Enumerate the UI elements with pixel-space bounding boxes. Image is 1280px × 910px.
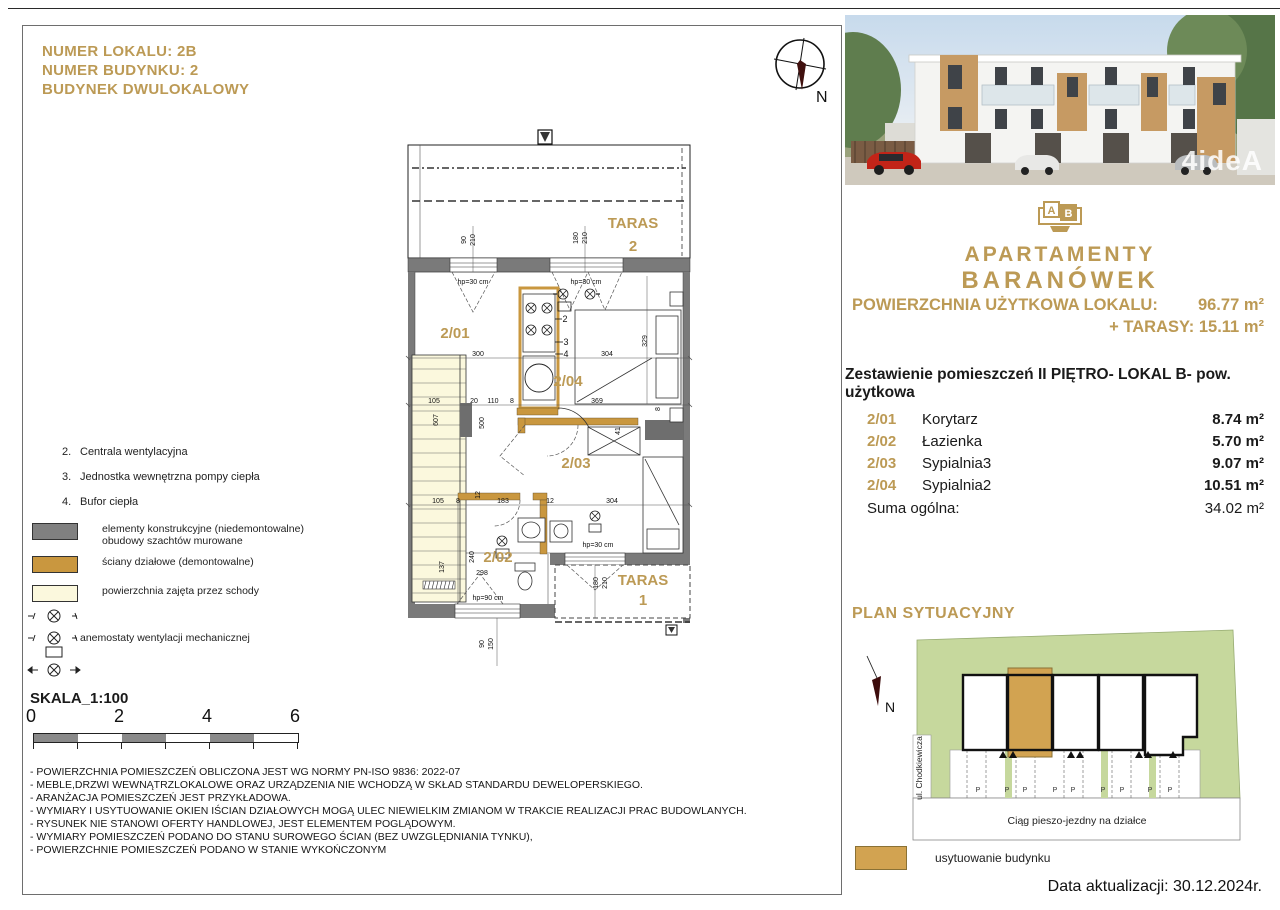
street-name: ul. Chodkiewicza — [914, 736, 924, 800]
brand-logo: A B APARTAMENTY BARANÓWEK — [860, 198, 1260, 295]
label: P — [1148, 787, 1153, 794]
sum-label: Suma ogólna: — [845, 500, 1205, 517]
gold-swatch — [32, 556, 78, 573]
label: 3 — [563, 337, 568, 347]
table-row: 2/01 Korytarz 8.74 m² — [845, 408, 1264, 430]
label: hp=90 cm — [473, 595, 504, 602]
room-code: 2/04 — [845, 477, 922, 494]
toilet-icon — [515, 563, 535, 571]
label: 210 — [602, 577, 609, 589]
unit-number: NUMER LOKALU: 2B — [42, 42, 249, 61]
label: 137 — [439, 561, 446, 573]
legend-note: 3. Jednostka wewnętrzna pompy ciepła — [62, 471, 260, 483]
label: 2 — [562, 314, 567, 324]
label: 4 — [563, 349, 568, 359]
label: 180 — [593, 577, 600, 589]
anemostat-symbols — [26, 608, 86, 680]
gray-swatch — [32, 523, 78, 540]
brochure-page: NUMER LOKALU: 2B NUMER BUDYNKU: 2 BUDYNE… — [0, 0, 1280, 910]
label: 12 — [475, 491, 482, 499]
table-row: 2/02 Łazienka 5.70 m² — [845, 430, 1264, 452]
room-name: Sypialnia3 — [922, 455, 1212, 472]
label: 304 — [606, 498, 618, 505]
label: P — [1120, 787, 1125, 794]
building-location-swatch — [855, 846, 907, 870]
label: 607 — [433, 414, 440, 426]
room-table: Zestawienie pomieszczeń II PIĘTRO- LOKAL… — [845, 366, 1264, 520]
sum-value: 34.02 m² — [1205, 500, 1264, 517]
legend-partition: ściany działowe (demontowalne) — [32, 556, 254, 573]
note-line: - RYSUNEK NIE STANOWI OFERTY HANDLOWEJ, … — [30, 818, 747, 831]
label: P — [1005, 787, 1010, 794]
roof-drain-icon — [538, 130, 552, 144]
label: P — [1053, 787, 1058, 794]
unit-header: NUMER LOKALU: 2B NUMER BUDYNKU: 2 BUDYNE… — [42, 42, 249, 99]
room-name: Sypialnia2 — [922, 477, 1204, 494]
north-arrow-line — [867, 656, 877, 678]
siteplan-legend-label: usytuowanie budynku — [935, 851, 1050, 865]
label: 105 — [428, 398, 440, 405]
building-outlines — [963, 675, 1197, 755]
north-wall — [408, 258, 690, 272]
siteplan-legend: usytuowanie budynku — [855, 846, 1050, 870]
legend-stairs: powierzchnia zajęta przez schody — [32, 585, 259, 602]
label: 2/04 — [553, 373, 583, 390]
swatch-label: obudowy szachtów murowane — [102, 535, 304, 547]
scale-title: SKALA_1:100 — [30, 690, 128, 707]
room-area: 5.70 m² — [1212, 433, 1264, 450]
terrace-area-value: + TARASY: 15.11 m² — [852, 318, 1264, 337]
top-rule — [8, 8, 1280, 9]
note-line: - WYMIARY POMIESZCZEŃ PODANO DO STANU SU… — [30, 831, 747, 844]
label: hp=30 cm — [571, 279, 602, 286]
swatch-label: ściany działowe (demontowalne) — [102, 556, 254, 568]
scale-tick-label: 0 — [26, 706, 36, 727]
label: 180 — [573, 232, 580, 244]
label: 105 — [432, 498, 444, 505]
scale-tick-label: 2 — [114, 706, 124, 727]
area-summary: POWIERZCHNIA UŻYTKOWA LOKALU: 96.77 m² +… — [852, 296, 1264, 337]
label: 41 — [615, 427, 622, 435]
table-row: 2/04 Sypialnia2 10.51 m² — [845, 474, 1264, 496]
brand-name-line1: APARTAMENTY — [860, 243, 1260, 267]
legend-note: 2. Centrala wentylacyjna — [62, 446, 260, 458]
cream-swatch — [32, 585, 78, 602]
note-text: Jednostka wewnętrzna pompy ciepła — [80, 471, 260, 483]
scale-tick-label: 4 — [202, 706, 212, 727]
update-date: Data aktualizacji: 30.12.2024r. — [1048, 878, 1262, 896]
label: 90 — [461, 236, 468, 244]
label: 1 — [639, 592, 647, 609]
ab-logo-icon: A B — [1036, 198, 1084, 234]
label: 329 — [642, 335, 649, 347]
technical-shaft — [517, 288, 563, 415]
label: 369 — [591, 398, 603, 405]
building-number: NUMER BUDYNKU: 2 — [42, 61, 249, 80]
label: 240 — [469, 551, 476, 563]
label: 8 — [655, 407, 662, 411]
table-row: 2/03 Sypialnia3 9.07 m² — [845, 452, 1264, 474]
highlighted-building — [1008, 668, 1052, 757]
label: 2/03 — [561, 455, 590, 472]
label: 2 — [629, 238, 637, 255]
siteplan-title: PLAN SYTUACYJNY — [852, 605, 1015, 623]
logo-letter-a: A — [1048, 205, 1056, 217]
note-text: Bufor ciepła — [80, 496, 138, 508]
siteplan-north-label: N — [885, 699, 895, 715]
note-num: 3. — [62, 471, 80, 483]
label: 20 — [470, 398, 478, 405]
equipment-number-labels: 234 — [562, 314, 568, 359]
compass: N — [768, 26, 838, 112]
legend-note: 4. Bufor ciepła — [62, 496, 260, 508]
label: P — [1168, 787, 1173, 794]
usable-area-value: 96.77 m² — [1198, 296, 1264, 315]
label: 300 — [472, 351, 484, 358]
label: TARAS — [608, 215, 659, 232]
usable-area-label: POWIERZCHNIA UŻYTKOWA LOKALU: — [852, 296, 1158, 315]
note-line: - ARANŻACJA POMIESZCZEŃ JEST PRZYKŁADOWA… — [30, 792, 747, 805]
radiator-icon — [423, 581, 455, 589]
label: 12 — [546, 498, 554, 505]
label: hp=30 cm — [458, 279, 489, 286]
note-line: - MEBLE,DRZWI WEWNĄTRZLOKALOWE ORAZ URZĄ… — [30, 779, 747, 792]
label: TARAS — [618, 572, 669, 589]
label: 298 — [476, 570, 488, 577]
terrace-2-area — [408, 145, 690, 258]
table-sum-row: Suma ogólna: 34.02 m² — [845, 496, 1264, 520]
note-line: - WYMIARY I USYTUOWANIE OKIEN IŚCIAN DZI… — [30, 805, 747, 818]
note-text: Centrala wentylacyjna — [80, 446, 188, 458]
label: 90 — [479, 640, 486, 648]
label: hp=30 cm — [583, 542, 614, 549]
swatch-label: powierzchnia zajęta przez schody — [102, 585, 259, 597]
label: 110 — [487, 398, 498, 405]
watermark: 4ideA — [1182, 145, 1263, 177]
road-label: Ciąg pieszo-jezdny na działce — [1008, 815, 1147, 827]
label: P — [1023, 787, 1028, 794]
note-line: - POWIERZCHNIA POMIESZCZEŃ OBLICZONA JES… — [30, 766, 747, 779]
building-render-photo: 4ideA — [845, 15, 1275, 185]
label: 210 — [470, 234, 477, 246]
logo-letter-b: B — [1065, 208, 1073, 220]
disclaimer-notes: - POWIERZCHNIA POMIESZCZEŃ OBLICZONA JES… — [30, 766, 747, 857]
legend-structural: elementy konstrukcyjne (niedemontowalne)… — [32, 523, 304, 547]
label: 150 — [488, 638, 495, 650]
scale-numbers: 0 2 4 6 — [26, 706, 302, 728]
scale-ticks — [33, 742, 299, 749]
note-num: 2. — [62, 446, 80, 458]
label: 210 — [582, 232, 589, 244]
note-line: - POWIERZCHNIE POMIESZCZEŃ PODANO W STAN… — [30, 844, 747, 857]
label: 304 — [601, 351, 613, 358]
north-arrow-needle-icon — [872, 676, 881, 706]
label: 183 — [497, 498, 509, 505]
equipment-legend: 2. Centrala wentylacyjna 3. Jednostka we… — [62, 446, 260, 521]
room-area: 8.74 m² — [1212, 411, 1264, 428]
room-name: Korytarz — [922, 411, 1212, 428]
siteplan: PPPPPPPPP N ul. Chodkiewicza Ciąg pieszo… — [855, 628, 1275, 843]
label: 500 — [479, 417, 486, 429]
room-code: 2/02 — [845, 433, 922, 450]
anemostat-label: anemostaty wentylacji mechanicznej — [80, 632, 250, 644]
room-area: 9.07 m² — [1212, 455, 1264, 472]
room-table-title: Zestawienie pomieszczeń II PIĘTRO- LOKAL… — [845, 366, 1264, 402]
building-type: BUDYNEK DWULOKALOWY — [42, 80, 249, 99]
floor-plan: 90210180210hp=30 cmhp=30 cm3003043295001… — [400, 126, 700, 686]
label: 8 — [510, 398, 514, 405]
label: 2/02 — [483, 549, 512, 566]
swatch-label: elementy konstrukcyjne (niedemontowalne) — [102, 523, 304, 535]
room-name: Łazienka — [922, 433, 1212, 450]
compass-north-label: N — [816, 89, 828, 106]
room-code: 2/01 — [845, 411, 922, 428]
room-code: 2/03 — [845, 455, 922, 472]
label: 8 — [456, 498, 460, 505]
label: P — [976, 787, 981, 794]
note-num: 4. — [62, 496, 80, 508]
scale-tick-label: 6 — [290, 706, 300, 727]
label: P — [1101, 787, 1106, 794]
label: 2/01 — [440, 325, 469, 342]
brand-name-line2: BARANÓWEK — [860, 267, 1260, 295]
label: P — [1071, 787, 1076, 794]
desk-room-203 — [588, 427, 640, 455]
wardrobe-block — [645, 420, 683, 440]
room-area: 10.51 m² — [1204, 477, 1264, 494]
